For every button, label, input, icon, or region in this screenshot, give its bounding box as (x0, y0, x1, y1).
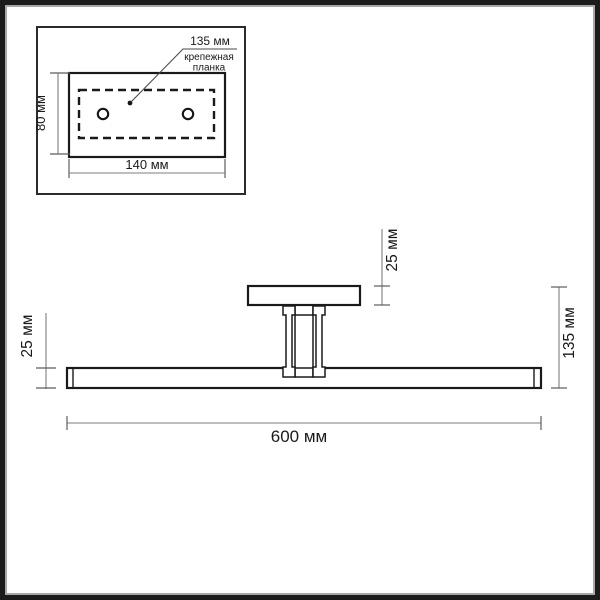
bar-thickness-dim-label: 25 мм (19, 315, 36, 358)
total-height-dim-label: 135 мм (561, 307, 578, 358)
mounting-hole-right (183, 109, 193, 119)
mounting-plate-inset: 135 мм крепежная планка 80 мм 140 мм (33, 27, 245, 194)
inset-width-dim-label: 140 мм (125, 157, 168, 172)
plate-name-line1: крепежная (184, 52, 234, 63)
stem-bracket (283, 303, 325, 377)
mounting-hole-left (98, 109, 108, 119)
canopy-plate (248, 286, 360, 305)
inset-height-dim-label: 80 мм (33, 95, 48, 131)
canopy-height-dim-label: 25 мм (384, 229, 401, 272)
plate-name-line2: планка (193, 63, 226, 74)
inset-leader-dim-label: 135 мм (190, 34, 230, 48)
diagram-page: 135 мм крепежная планка 80 мм 140 мм (0, 0, 600, 600)
fixture-dimension-diagram: 135 мм крепежная планка 80 мм 140 мм (0, 0, 600, 600)
stem-neck (295, 303, 313, 377)
total-width-dim-label: 600 мм (271, 427, 327, 446)
